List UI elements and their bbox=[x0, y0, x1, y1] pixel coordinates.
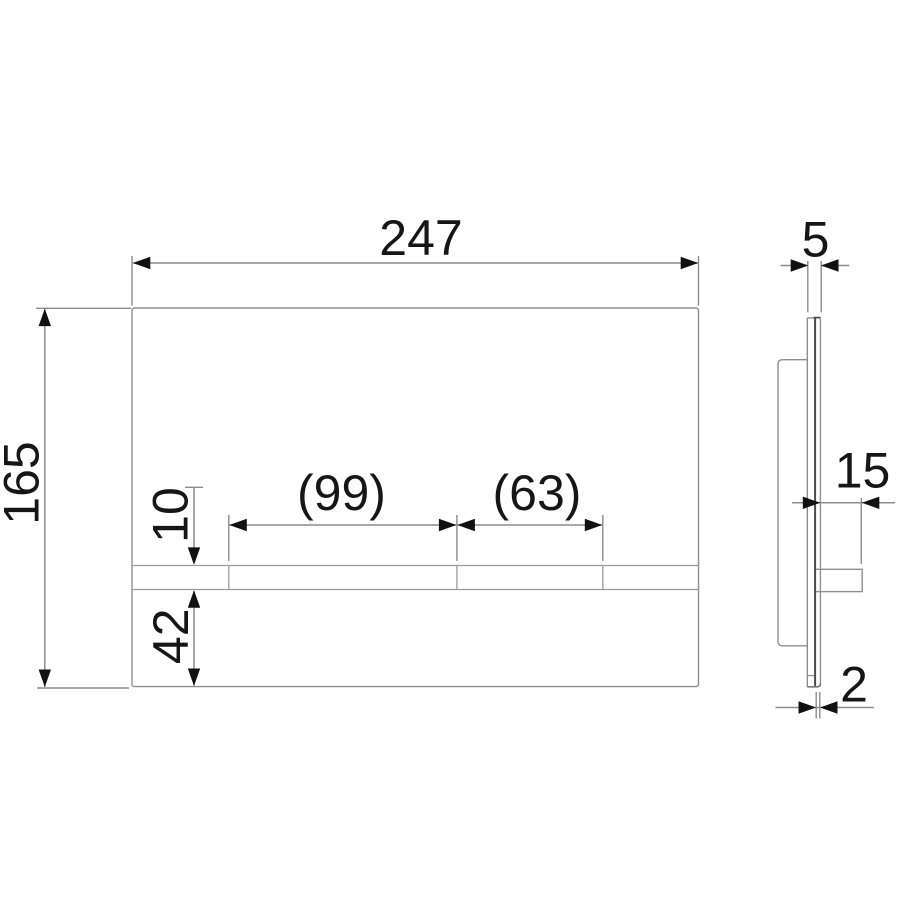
svg-text:10: 10 bbox=[143, 487, 199, 543]
svg-text:247: 247 bbox=[379, 210, 462, 266]
svg-text:165: 165 bbox=[0, 441, 50, 524]
svg-text:(63): (63) bbox=[493, 465, 582, 521]
svg-text:15: 15 bbox=[835, 443, 891, 499]
svg-text:5: 5 bbox=[802, 212, 830, 268]
svg-text:(99): (99) bbox=[297, 465, 386, 521]
svg-text:2: 2 bbox=[840, 657, 868, 713]
svg-text:42: 42 bbox=[143, 608, 199, 664]
